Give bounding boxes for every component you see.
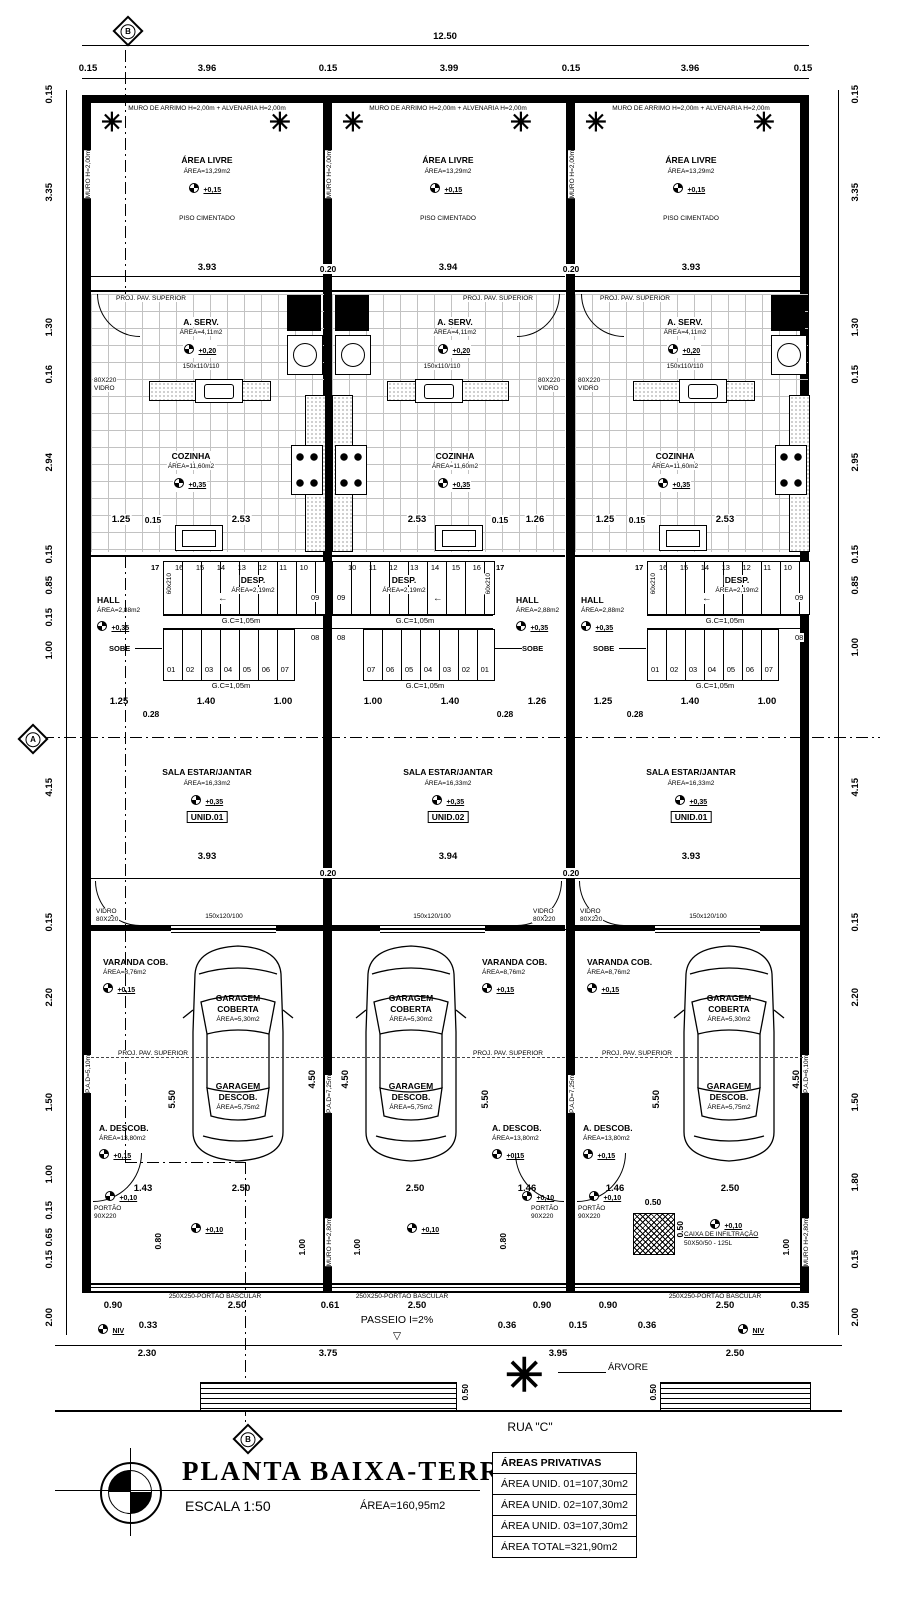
dim-sub-row-0: 0.33	[139, 1320, 158, 1331]
front-wall-left	[91, 925, 171, 931]
unit-tag: UNID.01	[671, 807, 712, 825]
dim-small-080: 0.80	[498, 1233, 508, 1250]
stair-step: 10	[300, 563, 308, 572]
room-area-hall: ÁREA=2,88m2	[97, 607, 140, 614]
stair-step: 04	[424, 665, 432, 674]
room-label-hall: HALL	[581, 595, 604, 605]
stair-step: 12	[742, 563, 750, 572]
kitchen-sink	[195, 379, 243, 403]
stair-step: 11	[763, 563, 771, 572]
private-areas-table: ÁREAS PRIVATIVAS ÁREA UNID. 01=107,30m2 …	[492, 1452, 637, 1558]
room-label-garagem-descob-1: GARAGEM	[707, 1081, 751, 1091]
room-label-cozinha: COZINHA	[171, 451, 212, 461]
level-marker-icon	[189, 183, 199, 193]
level-value: +0,35	[689, 799, 707, 806]
retaining-wall-label: MURO DE ARRIMO H=2,00m + ALVENARIA H=2,0…	[128, 105, 286, 112]
dim-gate-row-7: 0.35	[791, 1300, 810, 1311]
level-value: +0,10	[205, 1227, 223, 1234]
room-area-varanda: ÁREA=8,76m2	[103, 969, 146, 976]
level-value: +0,35	[530, 625, 548, 632]
stair-step-08: 08	[310, 633, 320, 642]
portao-label-2: 90X220	[93, 1213, 117, 1220]
washing-machine-drum-icon	[293, 343, 317, 367]
washing-machine-drum-icon	[777, 343, 801, 367]
stair-lower-numbers: 07060504030201	[367, 665, 489, 674]
dim-cozinha-c: 2.53	[715, 514, 736, 525]
room-area-garagem-descob: ÁREA=5,75m2	[216, 1104, 259, 1111]
stair-step: 03	[443, 665, 451, 674]
room-label-garagem-coberta-1: GARAGEM	[389, 993, 433, 1003]
north-symbol-axis-v	[130, 1448, 131, 1536]
level-marker-area-livre: +0,15	[673, 179, 705, 197]
dim-right-9: 0.15	[850, 913, 861, 932]
dim-hall-sub: 0.28	[143, 709, 160, 719]
dim-sub-row-1: 0.36	[498, 1320, 517, 1331]
level-marker-icon	[430, 183, 440, 193]
slope-triangle-icon: ▽	[393, 1330, 401, 1342]
stair-step: 01	[481, 665, 489, 674]
door-label-front-vidro-2: 80X220	[532, 916, 556, 923]
level-value: +0,10	[119, 1195, 137, 1202]
sobe-arrow-line	[619, 648, 646, 649]
dim-small-100: 1.00	[297, 1239, 307, 1256]
table-row: ÁREA UNID. 02=107,30m2	[493, 1495, 637, 1516]
stair-step: 13	[238, 563, 246, 572]
dim-vertical-450: 4.50	[307, 1070, 318, 1089]
room-area-varanda: ÁREA=8,76m2	[482, 969, 525, 976]
section-marker-b-bottom: B	[232, 1423, 263, 1454]
car-top-view	[352, 940, 470, 1168]
section-marker-a: A	[17, 723, 48, 754]
dim-line	[332, 276, 565, 277]
level-marker-icon	[97, 621, 107, 631]
stair-step: 12	[389, 563, 397, 572]
stove	[291, 445, 323, 495]
level-value: +0,35	[452, 482, 470, 489]
room-label-garagem-coberta-1: GARAGEM	[216, 993, 260, 1003]
level-marker-icon	[105, 1191, 115, 1201]
unit-1: MURO DE ARRIMO H=2,00m + ALVENARIA H=2,0…	[91, 95, 324, 1305]
room-label-garagem-descob-1: GARAGEM	[216, 1081, 260, 1091]
dim-cozinha-b: 0.15	[144, 515, 163, 525]
kitchen-table-top	[442, 530, 476, 547]
level-value: +0,15	[687, 187, 705, 194]
level-value: NIV	[752, 1328, 764, 1335]
level-marker-icon	[191, 795, 201, 805]
dim-hall-c: 1.26	[528, 696, 547, 707]
stair-step: 11	[369, 563, 377, 572]
retaining-wall-label: MURO DE ARRIMO H=2,00m + ALVENARIA H=2,0…	[369, 105, 527, 112]
front-window	[655, 925, 760, 933]
dim-right-6: 0.85	[850, 576, 861, 595]
direction-arrow-icon: ←	[432, 593, 444, 604]
room-label-hall: HALL	[97, 595, 120, 605]
dim-street-row-0: 2.30	[138, 1348, 157, 1359]
level-marker-a-serv: +0,20	[667, 340, 701, 358]
dim-total: 12.50	[433, 31, 457, 42]
dim-top-1: 3.96	[198, 63, 217, 74]
dim-right-3: 0.15	[850, 365, 861, 384]
front-wall-right	[760, 925, 808, 931]
level-value: +0,15	[117, 987, 135, 994]
portao-label-1: PORTÃO	[530, 1205, 559, 1212]
proj-pav-dashed-line	[575, 1057, 808, 1058]
room-area-sala: ÁREA=16,33m2	[668, 780, 715, 787]
dim-cozinha-a: 2.53	[407, 514, 428, 525]
room-label-garagem-coberta-2: COBERTA	[217, 1004, 258, 1014]
dim-gate-row-4: 0.90	[533, 1300, 552, 1311]
infiltration-box	[633, 1213, 675, 1255]
proj-pav-dashed-line	[91, 1057, 324, 1058]
room-label-a-serv: A. SERV.	[666, 317, 703, 327]
stair-step: 01	[651, 665, 659, 674]
room-label-varanda: VARANDA COB.	[587, 957, 652, 967]
dim-right-5: 0.15	[850, 545, 861, 564]
room-area-area-livre: ÁREA=13,29m2	[425, 168, 472, 175]
dim-vertical-550: 5.50	[167, 1090, 178, 1109]
room-label-a-descob: A. DESCOB.	[583, 1123, 633, 1133]
room-label-a-descob: A. DESCOB.	[492, 1123, 542, 1133]
stair-gc-upper: G.C=1,05m	[395, 616, 436, 625]
proj-pav-superior-garage-label: PROJ. PAV. SUPERIOR	[601, 1050, 673, 1057]
stair-step: 02	[670, 665, 678, 674]
dim-cozinha-a: 1.25	[595, 514, 616, 525]
dim-sala-width: 3.93	[682, 851, 701, 862]
level-marker-cozinha: +0,35	[173, 474, 207, 492]
stair-gc-upper: G.C=1,05m	[705, 616, 746, 625]
room-label-area-livre: ÁREA LIVRE	[665, 155, 716, 165]
section-marker-b-top: B	[112, 15, 143, 46]
table-row: ÁREA UNID. 01=107,30m2	[493, 1474, 637, 1495]
drawing-scale: ESCALA 1:50	[185, 1498, 271, 1514]
street-planter-left	[200, 1382, 457, 1412]
table-cell-total: ÁREA TOTAL=321,90m2	[493, 1537, 637, 1558]
level-marker-icon	[492, 1149, 502, 1159]
room-label-a-serv: A. SERV.	[436, 317, 473, 327]
room-label-garagem-descob-1: GARAGEM	[389, 1081, 433, 1091]
room-label-desp: DESP.	[240, 575, 266, 585]
door-label-rear-vidro-1: 80X220	[93, 377, 117, 384]
washing-machine-drum-icon	[341, 343, 365, 367]
stair-step: 07	[367, 665, 375, 674]
title-separator-line	[55, 1490, 480, 1491]
tree-leader-line	[558, 1372, 606, 1373]
infiltration-box-label-2: 50X50/50 - 125L	[683, 1240, 733, 1247]
direction-arrow-icon: ←	[701, 593, 713, 604]
room-area-a-descob: ÁREA=13,80m2	[99, 1135, 146, 1142]
door-label-rear-vidro-2: VIDRO	[537, 385, 560, 392]
table-row: ÁREA TOTAL=321,90m2	[493, 1537, 637, 1558]
dim-hall-a: 1.00	[364, 696, 383, 707]
level-marker-caixa: +0,10	[710, 1215, 742, 1233]
dim-hall-b: 1.40	[681, 696, 700, 707]
floor-label-piso-cimentado: PISO CIMENTADO	[420, 215, 476, 222]
window-label-a-serv: 150x110/110	[666, 363, 705, 370]
stair-sobe-label: SOBE	[593, 644, 614, 653]
level-marker-varanda: +0,15	[482, 979, 514, 997]
dim-left-0: 0.15	[44, 85, 55, 104]
stair-upper-numbers: 16151413121110	[659, 563, 792, 572]
room-area-sala: ÁREA=16,33m2	[425, 780, 472, 787]
stair-step: 07	[765, 665, 773, 674]
dim-vertical-450: 4.50	[791, 1070, 802, 1089]
wall-line-stair	[332, 555, 565, 557]
level-marker-hall: +0,35	[97, 617, 129, 635]
dim-cozinha-a: 1.25	[111, 514, 132, 525]
dim-left-16: 0.15	[44, 1250, 55, 1269]
level-value: +0,35	[595, 625, 613, 632]
level-marker-icon	[174, 478, 184, 488]
dim-line	[91, 276, 324, 277]
room-label-sala: SALA ESTAR/JANTAR	[403, 767, 493, 777]
sidewalk-label: PASSEIO I=2%	[361, 1314, 433, 1326]
dim-left-4: 2.94	[44, 453, 55, 472]
room-area-garagem-coberta: ÁREA=5,30m2	[216, 1016, 259, 1023]
room-area-garagem-coberta: ÁREA=5,30m2	[707, 1016, 750, 1023]
kitchen-table	[435, 525, 483, 551]
level-marker-sidewalk-right: NIV	[738, 1320, 764, 1338]
palm-icon: ✳	[342, 109, 364, 135]
level-value: +0,35	[188, 482, 206, 489]
room-label-a-descob: A. DESCOB.	[99, 1123, 149, 1133]
level-marker-gate: +0,10	[522, 1187, 554, 1205]
front-wall-left	[575, 925, 655, 931]
sink-basin	[424, 384, 454, 399]
dim-top-4: 0.15	[562, 63, 581, 74]
dim-small-100: 1.00	[352, 1239, 362, 1256]
table-row: ÁREA UNID. 03=107,30m2	[493, 1516, 637, 1537]
stair-step: 14	[701, 563, 709, 572]
kitchen-table	[175, 525, 223, 551]
level-marker-cozinha: +0,35	[437, 474, 471, 492]
drawing-area: ÁREA=160,95m2	[360, 1500, 445, 1512]
room-area-garagem-coberta: ÁREA=5,30m2	[389, 1016, 432, 1023]
level-value: +0,20	[198, 348, 216, 355]
dim-line-right	[838, 90, 839, 1335]
dim-gate-row-6: 2.50	[716, 1300, 735, 1311]
floor-label-piso-cimentado: PISO CIMENTADO	[179, 215, 235, 222]
stair-lower-numbers: 01020304050607	[651, 665, 773, 674]
dim-left-10: 0.15	[44, 913, 55, 932]
dim-cozinha-c: 2.53	[231, 514, 252, 525]
dim-street-row-3: 2.50	[726, 1348, 745, 1359]
dim-hall-b: 1.40	[441, 696, 460, 707]
proj-pav-superior-garage-label: PROJ. PAV. SUPERIOR	[117, 1050, 189, 1057]
palm-icon: ✳	[585, 109, 607, 135]
dim-area-livre-width: 3.93	[198, 262, 217, 273]
level-marker-driveway: +0,10	[407, 1219, 439, 1237]
stair-step: 03	[689, 665, 697, 674]
dim-right-10: 2.20	[850, 988, 861, 1007]
dim-hall-sub: 0.28	[627, 709, 644, 719]
level-marker-icon	[98, 1324, 108, 1334]
table-cell-unit-01: ÁREA UNID. 01=107,30m2	[493, 1474, 637, 1495]
dim-left-6: 0.85	[44, 576, 55, 595]
dim-right-11: 1.50	[850, 1093, 861, 1112]
level-marker-gate: +0,10	[589, 1187, 621, 1205]
dim-hall-sub: 0.28	[497, 709, 514, 719]
stair-upper-numbers: 10111213141516	[348, 563, 481, 572]
dim-sub-row-2: 0.15	[569, 1320, 588, 1331]
level-value: +0,10	[536, 1195, 554, 1202]
room-area-sala: ÁREA=16,33m2	[184, 780, 231, 787]
door-label-front-vidro-1: VIDRO	[579, 908, 602, 915]
stair-step: 06	[386, 665, 394, 674]
room-area-varanda: ÁREA=8,76m2	[587, 969, 630, 976]
level-marker-icon	[184, 344, 194, 354]
level-value: +0,35	[672, 482, 690, 489]
level-marker-icon	[673, 183, 683, 193]
dim-left-5: 0.15	[44, 545, 55, 564]
room-label-garagem-coberta-2: COBERTA	[390, 1004, 431, 1014]
palm-icon: ✳	[510, 109, 532, 135]
window-label-front: 150x120/100	[204, 913, 244, 920]
stair-step: 16	[659, 563, 667, 572]
dim-left-1: 3.35	[44, 183, 55, 202]
dim-gate-row-2: 0.61	[321, 1300, 340, 1311]
dim-top-6: 0.15	[794, 63, 813, 74]
table-cell-unit-02: ÁREA UNID. 02=107,30m2	[493, 1495, 637, 1516]
front-window	[380, 925, 485, 933]
level-marker-a-serv: +0,20	[183, 340, 217, 358]
room-label-desp: DESP.	[391, 575, 417, 585]
dim-area-livre-width: 3.94	[439, 262, 458, 273]
stair-step-08: 08	[336, 633, 346, 642]
room-area-a-descob: ÁREA=13,80m2	[492, 1135, 539, 1142]
dim-cozinha-b: 0.15	[628, 515, 647, 525]
dim-cozinha-c: 1.26	[525, 514, 546, 525]
room-area-a-serv: ÁREA=4,11m2	[179, 329, 224, 336]
portao-label-2: 90X220	[577, 1213, 601, 1220]
stair-step: 12	[258, 563, 266, 572]
portao-label-1: PORTÃO	[93, 1205, 122, 1212]
dim-right-12: 1.80	[850, 1173, 861, 1192]
dim-vertical-450: 4.50	[340, 1070, 351, 1089]
sidewalk-back-line	[55, 1345, 842, 1346]
room-label-garagem-descob-2: DESCOB.	[219, 1092, 258, 1102]
level-marker-sidewalk-left: NIV	[98, 1320, 124, 1338]
door-label-front-vidro-2: 80X220	[579, 916, 603, 923]
room-label-garagem-coberta-2: COBERTA	[708, 1004, 749, 1014]
level-value: +0,15	[444, 187, 462, 194]
front-wall-left	[332, 925, 380, 931]
stair-step: 11	[279, 563, 287, 572]
dim-sala-width: 3.93	[198, 851, 217, 862]
door-label-rear-vidro-1: 80X220	[537, 377, 561, 384]
kitchen-sink	[679, 379, 727, 403]
wall-left	[82, 95, 91, 1292]
level-marker-icon	[191, 1223, 201, 1233]
stair-step: 02	[186, 665, 194, 674]
room-area-garagem-descob: ÁREA=5,75m2	[389, 1104, 432, 1111]
room-area-hall: ÁREA=2,88m2	[516, 607, 559, 614]
level-value: +0,20	[682, 348, 700, 355]
sobe-arrow-line	[495, 648, 522, 649]
portao-label-1: PORTÃO	[577, 1205, 606, 1212]
stair-step: 13	[722, 563, 730, 572]
dim-left-2: 1.30	[44, 318, 55, 337]
stair-sobe-label: SOBE	[522, 644, 543, 653]
door-label-rear-vidro-1: 80X220	[577, 377, 601, 384]
kitchen-table-top	[182, 530, 216, 547]
stair-step: 01	[167, 665, 175, 674]
room-area-hall: ÁREA=2,88m2	[581, 607, 624, 614]
stove	[775, 445, 807, 495]
level-marker-a-serv: +0,20	[437, 340, 471, 358]
room-label-sala: SALA ESTAR/JANTAR	[646, 767, 736, 777]
level-marker-cozinha: +0,35	[657, 474, 691, 492]
dim-gate-b: 2.50	[232, 1183, 251, 1194]
dim-right-14: 2.00	[850, 1308, 861, 1327]
retaining-wall-label: MURO DE ARRIMO H=2,00m + ALVENARIA H=2,0…	[612, 105, 770, 112]
dim-caixa-width: 0.50	[645, 1197, 662, 1207]
room-label-area-livre: ÁREA LIVRE	[181, 155, 232, 165]
dim-street-row-1: 3.75	[319, 1348, 338, 1359]
unit-3: MURO DE ARRIMO H=2,00m + ALVENARIA H=2,0…	[575, 95, 808, 1305]
unit-tag-label: UNID.02	[428, 811, 469, 823]
stair-gc-lower: G.C=1,05m	[405, 681, 446, 690]
unit-tag-label: UNID.01	[671, 811, 712, 823]
level-marker-icon	[522, 1191, 532, 1201]
dim-left-3: 0.16	[44, 365, 55, 384]
level-value: +0,10	[421, 1227, 439, 1234]
dim-left-7: 0.15	[44, 608, 55, 627]
window-label-a-serv: 150x110/110	[182, 363, 221, 370]
level-value: +0,15	[203, 187, 221, 194]
dim-right-13: 0.15	[850, 1250, 861, 1269]
stair-step: 16	[473, 563, 481, 572]
dim-line-total	[82, 45, 809, 46]
portao-bascular-label: 250X250-PORTÃO BASCULAR	[168, 1293, 262, 1300]
stair-step: 05	[405, 665, 413, 674]
dim-line-left	[66, 90, 67, 1335]
dim-left-13: 1.00	[44, 1165, 55, 1184]
level-marker-icon	[738, 1324, 748, 1334]
dim-sub-row-3: 0.36	[638, 1320, 657, 1331]
sink-basin	[688, 384, 718, 399]
level-marker-icon	[675, 795, 685, 805]
room-area-cozinha: ÁREA=11,60m2	[651, 463, 699, 470]
level-value: +0,15	[496, 987, 514, 994]
door-label-front-vidro-1: VIDRO	[532, 908, 555, 915]
room-area-garagem-descob: ÁREA=5,75m2	[707, 1104, 750, 1111]
level-marker-hall: +0,35	[581, 617, 613, 635]
stair-step-09: 09	[336, 593, 346, 602]
drawing-title: PLANTA BAIXA-TERREO	[182, 1456, 544, 1487]
stair-step: 04	[224, 665, 232, 674]
door-label-desp: 60x210	[649, 573, 658, 594]
dim-hall-a: 1.25	[594, 696, 613, 707]
level-marker-icon	[482, 983, 492, 993]
room-area-area-livre: ÁREA=13,29m2	[668, 168, 715, 175]
stair-step: 05	[243, 665, 251, 674]
stair-gc-upper: G.C=1,05m	[221, 616, 262, 625]
dim-gate-row-3: 2.50	[408, 1300, 427, 1311]
stair-lower-numbers: 01020304050607	[167, 665, 289, 674]
dim-gate-row-1: 2.50	[228, 1300, 247, 1311]
level-marker-icon	[581, 621, 591, 631]
room-label-a-serv: A. SERV.	[182, 317, 219, 327]
dim-vertical-550: 5.50	[651, 1090, 662, 1109]
level-value: +0,15	[601, 987, 619, 994]
washing-machine	[335, 335, 371, 375]
stair-step: 10	[784, 563, 792, 572]
level-marker-icon	[710, 1219, 720, 1229]
level-marker-icon	[438, 344, 448, 354]
dim-planter-left: 0.50	[460, 1384, 470, 1401]
car-top-view	[670, 940, 788, 1168]
dim-right-7: 1.00	[850, 638, 861, 657]
